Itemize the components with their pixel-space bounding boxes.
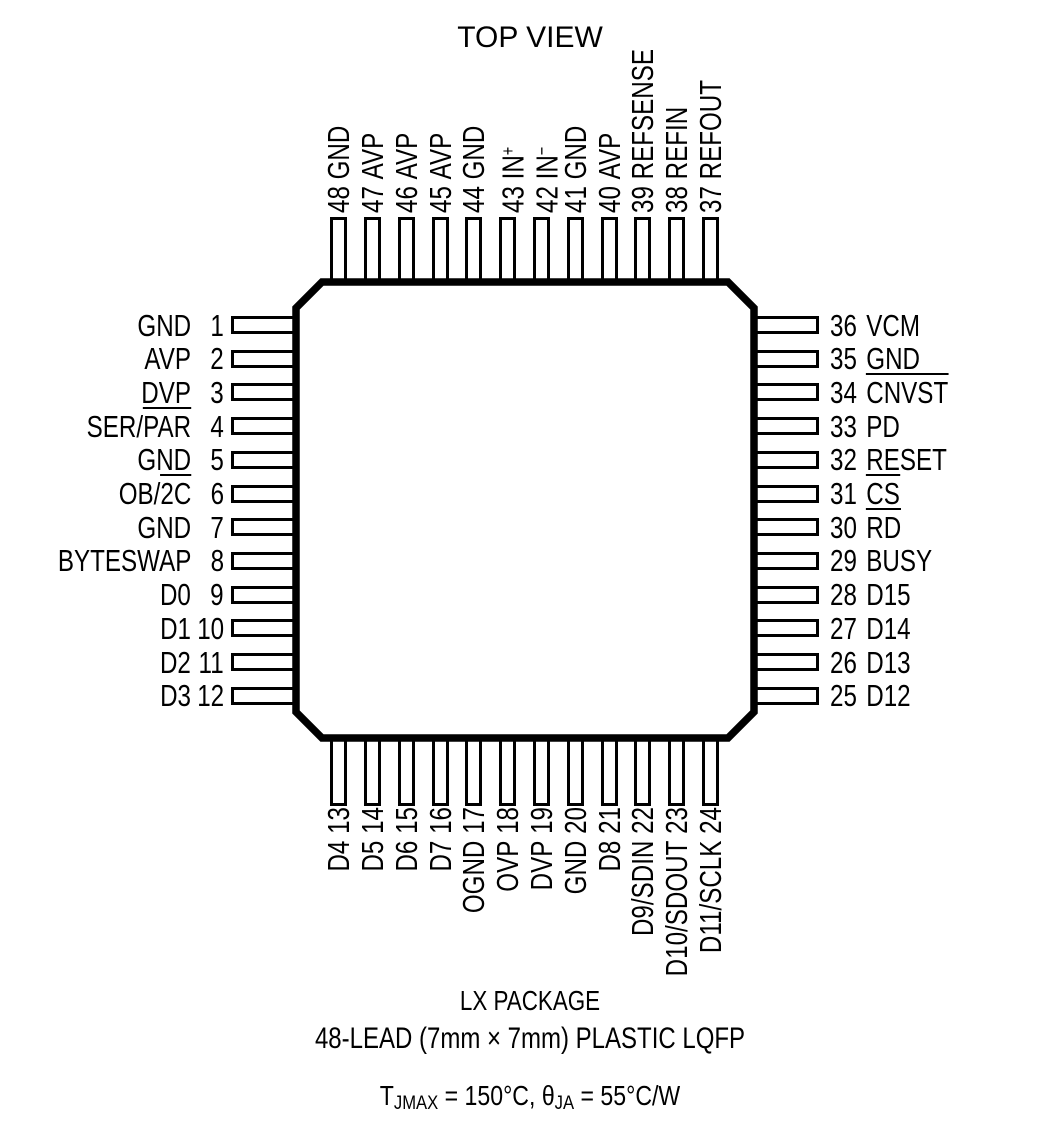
- pin-label: CS: [866, 478, 900, 509]
- pin-47-label: 47 AVP: [357, 110, 388, 213]
- pin-label-text: VCM: [866, 308, 920, 343]
- pin-16: [432, 735, 449, 806]
- pin-43-label: 43 IN+: [492, 128, 528, 213]
- pin-37-label: 37 REFOUT: [695, 42, 726, 213]
- pin-11-label: D211: [160, 647, 224, 678]
- pin-number: 31: [830, 478, 857, 509]
- pin-17-label: OGND 17: [458, 807, 489, 943]
- pin-label: D14: [866, 613, 910, 644]
- pin-label: RESET: [866, 444, 947, 475]
- pin-label: GND: [866, 343, 920, 374]
- pin-number: 24: [693, 807, 728, 834]
- pin-39-label: 39 REFSENSE: [627, 3, 658, 213]
- pin-label: D3: [160, 680, 191, 711]
- pin-label-text: REFOUT: [693, 80, 728, 179]
- pin-22: [634, 735, 651, 806]
- pin-label: 39 REFSENSE: [627, 49, 658, 213]
- pin-10-label: D110: [160, 613, 224, 644]
- pin-2: [231, 350, 299, 368]
- pin-9-label: D09: [160, 579, 224, 610]
- pin-number: 10: [197, 613, 224, 644]
- pin-16-label: D7 16: [425, 807, 456, 890]
- pin-label: D10/SDOUT 23: [661, 807, 692, 976]
- pin-label-text: −: [531, 147, 552, 155]
- pin-35: [751, 350, 819, 368]
- pin-13-label: D4 13: [323, 807, 354, 890]
- pin-number: 6: [197, 478, 224, 509]
- pin-label-text: GND: [138, 510, 192, 545]
- package-name: LX PACKAGE: [106, 987, 954, 1015]
- pin-14-label: D5 14: [357, 807, 388, 890]
- pin-label-text: D6: [389, 841, 424, 872]
- pin-8-label: BYTESWAP8: [58, 545, 224, 576]
- pin-11: [231, 653, 299, 671]
- pin-label-text: GND: [138, 442, 192, 477]
- pin-label: OVP 18: [492, 807, 523, 892]
- pin-48-label: 48 GND: [323, 101, 354, 213]
- pin-26-label: 26D13: [830, 647, 911, 678]
- pin-number: 37: [693, 186, 728, 213]
- pin-14: [364, 735, 381, 806]
- pin-label-text: BUSY: [866, 543, 932, 578]
- pin-label-text: D1: [160, 611, 191, 646]
- pin-28-label: 28D15: [830, 579, 911, 610]
- pin-label: VCM: [866, 310, 920, 341]
- pin-31-label: 31CS: [830, 478, 900, 509]
- pin-label-text: AVP: [145, 341, 192, 376]
- pin-41-label: 41 GND: [560, 101, 591, 213]
- pin-48: [330, 217, 347, 285]
- pin-19: [533, 735, 550, 806]
- pin-label: D7 16: [425, 807, 456, 872]
- pin-number: 3: [197, 377, 224, 408]
- pin-33: [751, 417, 819, 435]
- pin-label: 41 GND: [560, 126, 591, 213]
- pin-label: D2: [160, 647, 191, 678]
- pin-label-text: +: [497, 147, 518, 155]
- pin-number: 40: [592, 186, 627, 213]
- pin-8: [231, 552, 299, 570]
- pin-27-label: 27D14: [830, 613, 911, 644]
- pin-label-text: GND: [138, 308, 192, 343]
- pin-label: 48 GND: [323, 126, 354, 213]
- pin-label-text: D4: [321, 841, 356, 872]
- pin-43: [499, 217, 516, 285]
- pin-label-text: GND: [866, 341, 920, 376]
- pin-label: D4 13: [323, 807, 354, 872]
- pin-24-label: D11/SCLK 24: [695, 807, 726, 994]
- thermal-t-sub: JMAX: [394, 1092, 438, 1114]
- pin-5: [231, 451, 299, 469]
- pin-label-text: D5: [355, 841, 390, 872]
- pin-12-label: D312: [160, 680, 224, 711]
- pin-number: 39: [625, 186, 660, 213]
- pin-19-label: DVP 19: [526, 807, 557, 914]
- pin-label: 40 AVP: [594, 133, 625, 213]
- pin-number: 14: [355, 807, 390, 834]
- pin-4: [231, 417, 299, 435]
- pin-label-text: BYTESWAP: [58, 543, 191, 578]
- pin-label-text: GND: [558, 126, 593, 180]
- pin-39: [634, 217, 651, 285]
- thermal-ja-sub: JA: [555, 1092, 574, 1114]
- pin-number: 13: [321, 807, 356, 834]
- thermal-note: TJMAX = 150°C, θJA = 55°C/W: [85, 1081, 975, 1118]
- pin-number: 21: [592, 807, 627, 834]
- pin-38: [668, 217, 685, 285]
- pin-47: [364, 217, 381, 285]
- top-view-label: TOP VIEW: [0, 23, 1060, 53]
- pin-label: OB/2C: [119, 478, 192, 509]
- pin-6-label: OB/2C6: [119, 478, 224, 509]
- pin-label-text: AVP: [389, 133, 424, 180]
- pin-27: [751, 619, 819, 637]
- pin-10: [231, 619, 299, 637]
- pin-number: 35: [830, 343, 857, 374]
- pin-label: D5 14: [357, 807, 388, 872]
- pin-label: 45 AVP: [425, 133, 456, 213]
- pin-3-label: DVP3: [142, 377, 224, 408]
- pin-label-text: AVP: [592, 133, 627, 180]
- pin-40: [601, 217, 618, 285]
- pin-21: [601, 735, 618, 806]
- pin-label-text: SER/: [87, 409, 143, 444]
- pin-label: D0: [160, 579, 191, 610]
- pin-36: [751, 316, 819, 334]
- pin-6: [231, 485, 299, 503]
- pin-label: D9/SDIN 22: [627, 807, 658, 936]
- pin-number: 32: [830, 444, 857, 475]
- pin-number: 26: [830, 647, 857, 678]
- pin-number: 2: [197, 343, 224, 374]
- pin-label-text: PAR: [143, 407, 191, 444]
- pin-label: CNVST: [866, 377, 948, 408]
- pin-label-text: D9/SDIN: [625, 841, 660, 936]
- pin-label: BYTESWAP: [58, 545, 191, 576]
- pin-label-text: DVP: [142, 375, 192, 410]
- pin-1-label: GND1: [138, 310, 224, 341]
- pin-label-text: CNVST: [866, 373, 948, 410]
- pin-label: GND: [138, 512, 192, 543]
- pin-number: 34: [830, 377, 857, 408]
- pin-label: GND: [138, 310, 192, 341]
- pin-22-label: D9/SDIN 22: [627, 807, 658, 972]
- pin-label-text: D2: [160, 645, 191, 680]
- pin-label: 47 AVP: [357, 133, 388, 213]
- pin-number: 23: [659, 807, 694, 834]
- pin-label-text: AVP: [423, 133, 458, 180]
- pin-9: [231, 586, 299, 604]
- pin-18: [499, 735, 516, 806]
- pin-number: 44: [456, 186, 491, 213]
- pin-label-text: DVP: [524, 841, 559, 891]
- pin-40-label: 40 AVP: [594, 110, 625, 213]
- pin-label: 42 IN−: [526, 147, 562, 213]
- pin-number: 36: [830, 310, 857, 341]
- pin-label: D11/SCLK 24: [695, 807, 726, 953]
- pin-15-label: D6 15: [391, 807, 422, 890]
- pin-label-text: OVP: [490, 841, 525, 892]
- pin-45: [432, 217, 449, 285]
- pin-label-text: GND: [558, 841, 593, 895]
- pin-number: 30: [830, 512, 857, 543]
- pin-label: 46 AVP: [391, 133, 422, 213]
- pin-number: 4: [197, 411, 224, 442]
- pin-36-label: 36VCM: [830, 310, 920, 341]
- pin-label: PD: [866, 411, 900, 442]
- pin-label: D13: [866, 647, 910, 678]
- pin-45-label: 45 AVP: [425, 110, 456, 213]
- pin-label-text: D13: [866, 645, 910, 680]
- pin-label-text: D15: [866, 577, 910, 612]
- pin-number: 16: [423, 807, 458, 834]
- pin-number: 47: [355, 186, 390, 213]
- pin-label-text: RESET: [866, 442, 947, 477]
- pin-label: 37 REFOUT: [695, 80, 726, 213]
- pin-3: [231, 383, 299, 401]
- pin-label: RD: [866, 512, 901, 543]
- pin-38-label: 38 REFIN: [661, 77, 692, 213]
- pin-37: [702, 217, 719, 285]
- thermal-suffix: = 55°C/W: [574, 1080, 680, 1111]
- pin-label-text: 2C: [160, 474, 191, 511]
- pin-5-label: GND5: [138, 444, 224, 475]
- pin-23: [668, 735, 685, 806]
- pin-label-text: OB/: [119, 476, 161, 511]
- package-outline: [296, 282, 754, 738]
- pin-30-label: 30RD: [830, 512, 901, 543]
- pin-number: 33: [830, 411, 857, 442]
- pin-46-label: 46 AVP: [391, 110, 422, 213]
- pin-4-label: SER/PAR4: [87, 411, 224, 442]
- pin-label-text: D7: [423, 841, 458, 872]
- pin-20-label: GND 20: [560, 807, 591, 919]
- pin-32-label: 32RESET: [830, 444, 947, 475]
- pin-label-text: D14: [866, 611, 910, 646]
- pin-label-text: AVP: [355, 133, 390, 180]
- pin-label: D1: [160, 613, 191, 644]
- pin-number: 38: [659, 186, 694, 213]
- pin-12: [231, 687, 299, 705]
- pin-label: D8 21: [594, 807, 625, 872]
- pin-46: [398, 217, 415, 285]
- pin-number: 8: [197, 545, 224, 576]
- pin-44: [465, 217, 482, 285]
- pin-13: [330, 735, 347, 806]
- pin-number: 5: [197, 444, 224, 475]
- pin-number: 18: [490, 807, 525, 834]
- pin-label-text: D0: [160, 577, 191, 612]
- pin-label: BUSY: [866, 545, 932, 576]
- pin-number: 28: [830, 579, 857, 610]
- pin-label: D12: [866, 680, 910, 711]
- pin-label: DVP: [142, 377, 192, 408]
- thermal-mid: = 150°C, θ: [438, 1080, 554, 1111]
- pin-label-text: GND: [321, 126, 356, 180]
- pinout-diagram: TOP VIEW 48 GND47 AVP46 AVP45 AVP44 GND4…: [0, 0, 1060, 1130]
- pin-label: 43 IN+: [492, 147, 528, 213]
- pin-label-text: D12: [866, 678, 910, 713]
- pin-label: DVP 19: [526, 807, 557, 890]
- pin-number: 41: [558, 186, 593, 213]
- pin-number: 11: [197, 647, 224, 678]
- pin-15: [398, 735, 415, 806]
- pin-29-label: 29BUSY: [830, 545, 932, 576]
- pin-number: 45: [423, 186, 458, 213]
- pin-label-text: D11/SCLK: [693, 841, 728, 953]
- pin-number: 48: [321, 186, 356, 213]
- pin-number: 1: [197, 310, 224, 341]
- pin-number: 17: [456, 807, 491, 834]
- pin-1: [231, 316, 299, 334]
- pin-21-label: D8 21: [594, 807, 625, 890]
- pin-30: [751, 518, 819, 536]
- pin-number: 25: [830, 680, 857, 711]
- pin-label-text: REFIN: [659, 107, 694, 180]
- pin-label-text: D8: [592, 841, 627, 872]
- thermal-t: T: [380, 1080, 394, 1111]
- pin-number: 19: [524, 807, 559, 834]
- pin-label: GND: [138, 444, 192, 475]
- pin-label-text: REFSENSE: [625, 49, 660, 179]
- pin-label: 44 GND: [458, 126, 489, 213]
- pin-label: SER/PAR: [87, 411, 191, 442]
- pin-number: 12: [197, 680, 224, 711]
- pin-31: [751, 485, 819, 503]
- pin-7-label: GND7: [138, 512, 224, 543]
- pin-42-label: 42 IN−: [526, 128, 562, 213]
- pin-label-text: D3: [160, 678, 191, 713]
- pin-number: 46: [389, 186, 424, 213]
- pin-label: GND 20: [560, 807, 591, 894]
- pin-17: [465, 735, 482, 806]
- pin-number: 29: [830, 545, 857, 576]
- pin-number: 15: [389, 807, 424, 834]
- pin-34-label: 34CNVST: [830, 377, 948, 408]
- pin-34: [751, 383, 819, 401]
- pin-label: OGND 17: [458, 807, 489, 913]
- pin-7: [231, 518, 299, 536]
- pin-number: 27: [830, 613, 857, 644]
- pin-label-text: GND: [456, 126, 491, 180]
- pin-number: 20: [558, 807, 593, 834]
- pin-number: 7: [197, 512, 224, 543]
- pin-2-label: AVP2: [145, 343, 224, 374]
- pin-25: [751, 687, 819, 705]
- pin-number: 9: [197, 579, 224, 610]
- pin-label-text: D10/SDOUT: [659, 841, 694, 977]
- pin-32: [751, 451, 819, 469]
- pin-label-text: PD: [866, 409, 900, 444]
- pin-26: [751, 653, 819, 671]
- pin-label: AVP: [145, 343, 192, 374]
- pin-42: [533, 217, 550, 285]
- pin-label-text: RD: [866, 508, 901, 545]
- pin-label: D15: [866, 579, 910, 610]
- pin-33-label: 33PD: [830, 411, 900, 442]
- package-description: 48-LEAD (7mm × 7mm) PLASTIC LQFP: [106, 1024, 954, 1054]
- pin-number: 22: [625, 807, 660, 834]
- pin-44-label: 44 GND: [458, 101, 489, 213]
- pin-label: D6 15: [391, 807, 422, 872]
- pin-35-label: 35GND: [830, 343, 920, 374]
- pin-label-text: CS: [866, 474, 900, 511]
- pin-label: 38 REFIN: [661, 107, 692, 213]
- pin-18-label: OVP 18: [492, 807, 523, 916]
- pin-label-text: OGND: [456, 841, 491, 914]
- pin-29: [751, 552, 819, 570]
- pin-28: [751, 586, 819, 604]
- pin-24: [702, 735, 719, 806]
- pin-20: [567, 735, 584, 806]
- pin-41: [567, 217, 584, 285]
- pin-25-label: 25D12: [830, 680, 911, 711]
